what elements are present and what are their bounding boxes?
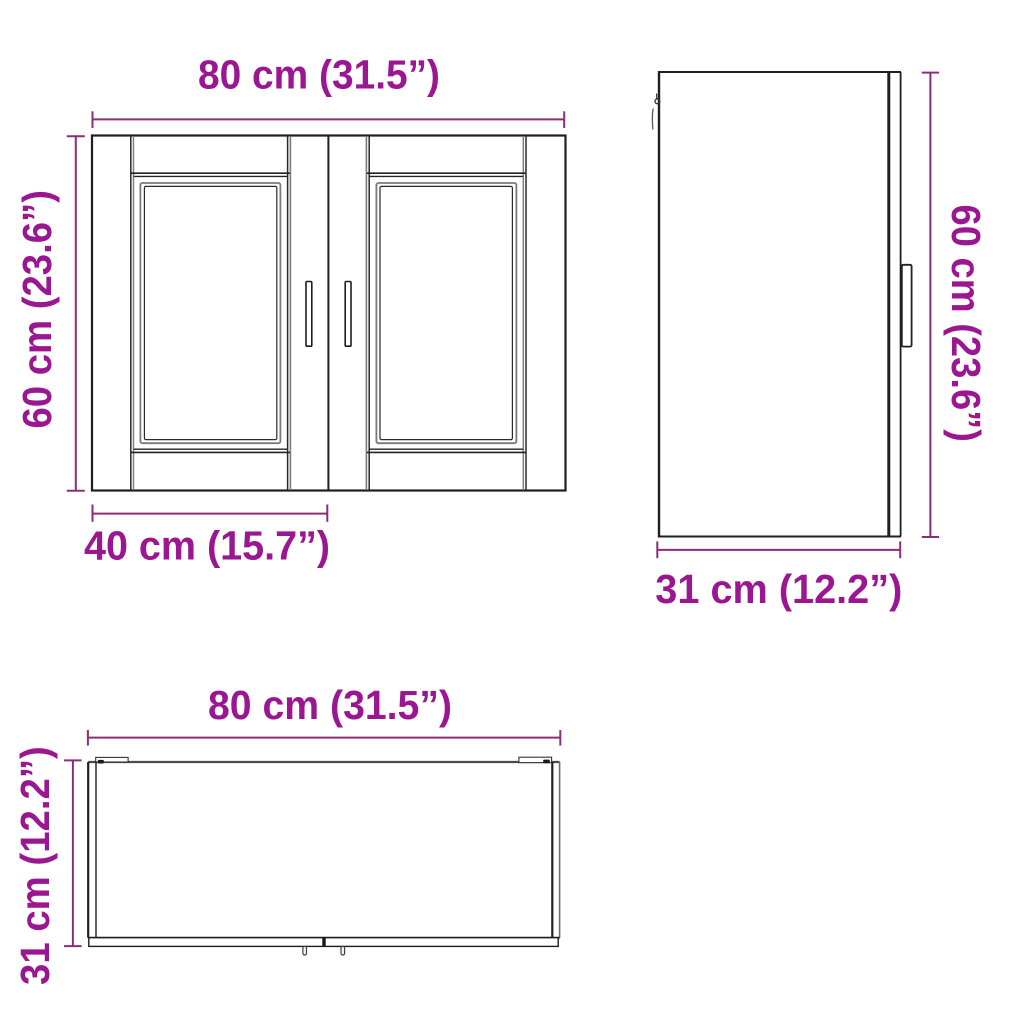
svg-text:40 cm (15.7”): 40 cm (15.7”) — [84, 523, 330, 569]
svg-text:31 cm (12.2”): 31 cm (12.2”) — [655, 566, 902, 612]
svg-text:80 cm (31.5”): 80 cm (31.5”) — [198, 52, 440, 98]
svg-text:31 cm (12.2”): 31 cm (12.2”) — [12, 746, 58, 985]
svg-text:60 cm (23.6”): 60 cm (23.6”) — [14, 190, 60, 429]
svg-text:60 cm (23.6”): 60 cm (23.6”) — [943, 205, 989, 442]
svg-text:80 cm (31.5”): 80 cm (31.5”) — [208, 682, 452, 728]
